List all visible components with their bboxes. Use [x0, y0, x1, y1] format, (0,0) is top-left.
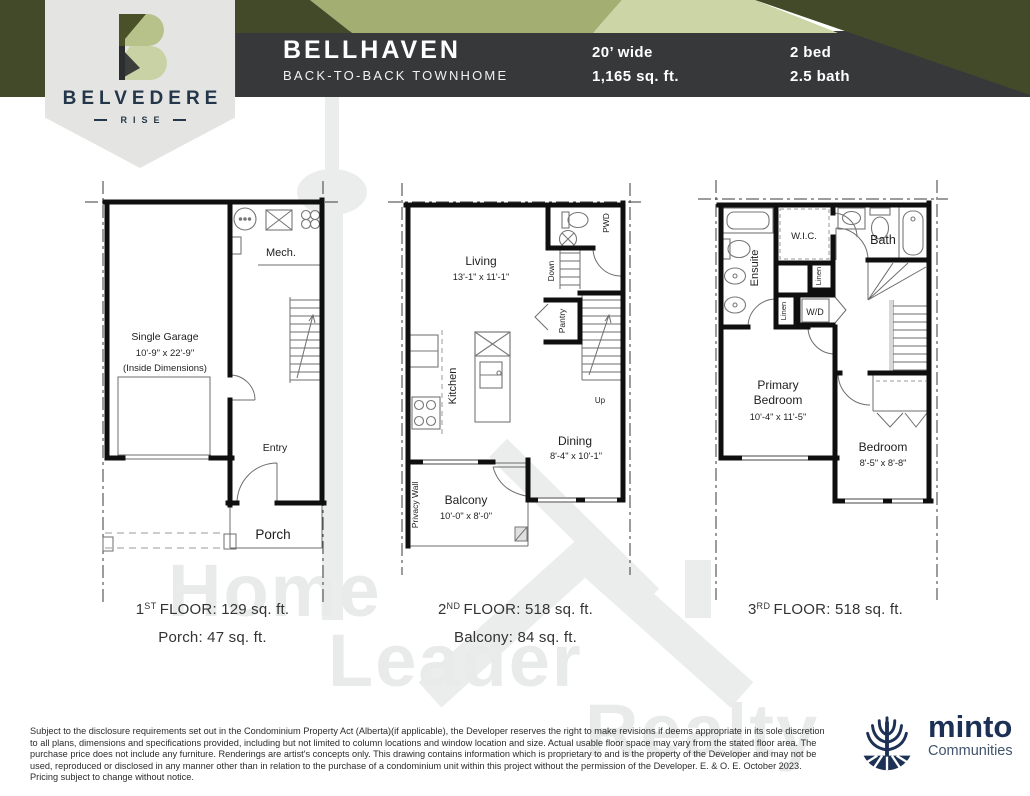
pwd-label: PWD	[601, 213, 611, 233]
primary-bedroom-dim-label: 10'-4" x 11'-5"	[750, 412, 807, 422]
entry-label: Entry	[263, 442, 288, 454]
toilet-icon	[562, 212, 588, 228]
floor-number: 1	[136, 601, 145, 618]
island-icon	[475, 332, 510, 422]
dash-right	[173, 119, 186, 121]
ensuite-tub-icon	[723, 208, 773, 233]
dining-label: Dining	[558, 434, 592, 448]
bedroom-dim-label: 8'-5" x 8'-8"	[860, 458, 907, 468]
stair-rail	[889, 300, 893, 373]
floor-plan-second-drawing: Living 13'-1" x 11'-1" PWD Down Pantry K…	[388, 175, 643, 615]
driveway-lines	[105, 533, 223, 548]
floor-plan-first: Mech. Single Garage 10'-9" x 22'-9" (Ins…	[85, 175, 340, 615]
garage-dim-label: 10'-9" x 22'-9"	[136, 348, 194, 359]
mech-label: Mech.	[266, 247, 296, 259]
legal-disclaimer: Subject to the disclosure requirements s…	[30, 726, 832, 784]
furnace-icon	[302, 211, 320, 229]
linen-lower-label: Linen	[779, 302, 788, 320]
brand-subtitle: Communities	[928, 743, 1013, 759]
kitchen-label: Kitchen	[447, 368, 459, 405]
floor-ordinal: ST	[144, 601, 157, 611]
up-label: Up	[595, 396, 606, 405]
bath-label: Bath	[870, 233, 896, 247]
floorplan-sheet: Home Leader Realty	[0, 0, 1030, 796]
minto-tree-icon	[856, 712, 918, 776]
floor-number: 3	[748, 601, 757, 618]
sink-icon	[560, 231, 577, 248]
floor-number: 2	[438, 601, 447, 618]
washer-dryer-label: W/D	[806, 307, 824, 317]
property-lines	[388, 183, 643, 575]
walls	[406, 203, 623, 546]
minto-communities-logo: minto Communities	[856, 712, 1013, 776]
porch-label: Porch	[255, 527, 290, 542]
floor-plan-third: Ensuite W.I.C. Bath Linen Linen W/D Prim…	[698, 175, 953, 615]
floor-ordinal: ND	[447, 601, 461, 611]
living-dim-label: 13'-1" x 11'-1"	[453, 272, 510, 282]
header-light-sage-band	[570, 0, 860, 33]
floor-plan-third-drawing: Ensuite W.I.C. Bath Linen Linen W/D Prim…	[698, 175, 953, 615]
privacy-wall-label: Privacy Wall	[410, 482, 420, 529]
floor-area-text: FLOOR: 518 sq. ft.	[464, 601, 593, 618]
ensuite-toilet-icon	[723, 239, 750, 259]
floor-area-text: FLOOR: 518 sq. ft.	[774, 601, 903, 618]
primary-bedroom-label-1: Primary	[757, 378, 798, 392]
ensuite-label: Ensuite	[749, 250, 761, 287]
porch-area-text: Porch: 47 sq. ft.	[85, 629, 340, 646]
bedroom-label: Bedroom	[859, 440, 908, 454]
balcony-dim-label: 10'-0" x 8'-0"	[440, 511, 492, 521]
balcony-label: Balcony	[445, 493, 488, 507]
balcony-area-text: Balcony: 84 sq. ft.	[388, 629, 643, 646]
garage-note-label: (Inside Dimensions)	[123, 363, 207, 374]
duct-icon	[232, 237, 241, 254]
electrical-panel-icon	[266, 210, 292, 230]
ensuite-sink-icons	[725, 268, 746, 313]
property-lines	[85, 181, 340, 605]
brand-name: minto	[928, 712, 1013, 742]
floor-plan-first-drawing: Mech. Single Garage 10'-9" x 22'-9" (Ins…	[85, 175, 340, 615]
first-floor-caption: 1STFLOOR: 129 sq. ft. Porch: 47 sq. ft.	[85, 600, 340, 646]
minto-wordmark: minto Communities	[928, 712, 1013, 759]
living-label: Living	[465, 254, 496, 268]
floor-area-text: FLOOR: 129 sq. ft.	[160, 601, 289, 618]
floor-plan-second: Living 13'-1" x 11'-1" PWD Down Pantry K…	[388, 175, 643, 615]
wic-label: W.I.C.	[791, 231, 817, 242]
thin-lines	[103, 265, 322, 551]
bath-tub-icon	[899, 207, 927, 259]
primary-bedroom-label-2: Bedroom	[754, 393, 803, 407]
cn-tower-spire	[325, 60, 339, 185]
dining-dim-label: 8'-4" x 10'-1"	[550, 451, 602, 461]
stove-icon	[412, 397, 440, 429]
second-floor-caption: 2NDFLOOR: 518 sq. ft. Balcony: 84 sq. ft…	[388, 600, 643, 646]
floor-ordinal: RD	[757, 601, 771, 611]
belvedere-rise-badge: BELVEDERE RISE	[45, 0, 235, 168]
garage-label: Single Garage	[131, 331, 198, 343]
property-lines	[698, 180, 948, 600]
belvedere-b-logo-icon	[112, 13, 168, 81]
header-sage-band	[300, 0, 640, 33]
belvedere-name: BELVEDERE	[45, 88, 235, 110]
rise-subtitle: RISE	[45, 115, 235, 125]
dash-left	[94, 119, 107, 121]
down-label: Down	[547, 261, 556, 281]
rise-text: RISE	[114, 115, 165, 125]
third-floor-caption: 3RDFLOOR: 518 sq. ft.	[698, 600, 953, 618]
balcony-posts	[515, 527, 527, 541]
fridge-icon	[410, 335, 438, 367]
pantry-label: Pantry	[557, 308, 567, 333]
linen-upper-label: Linen	[814, 267, 823, 285]
bath-sink-icon	[838, 208, 865, 229]
